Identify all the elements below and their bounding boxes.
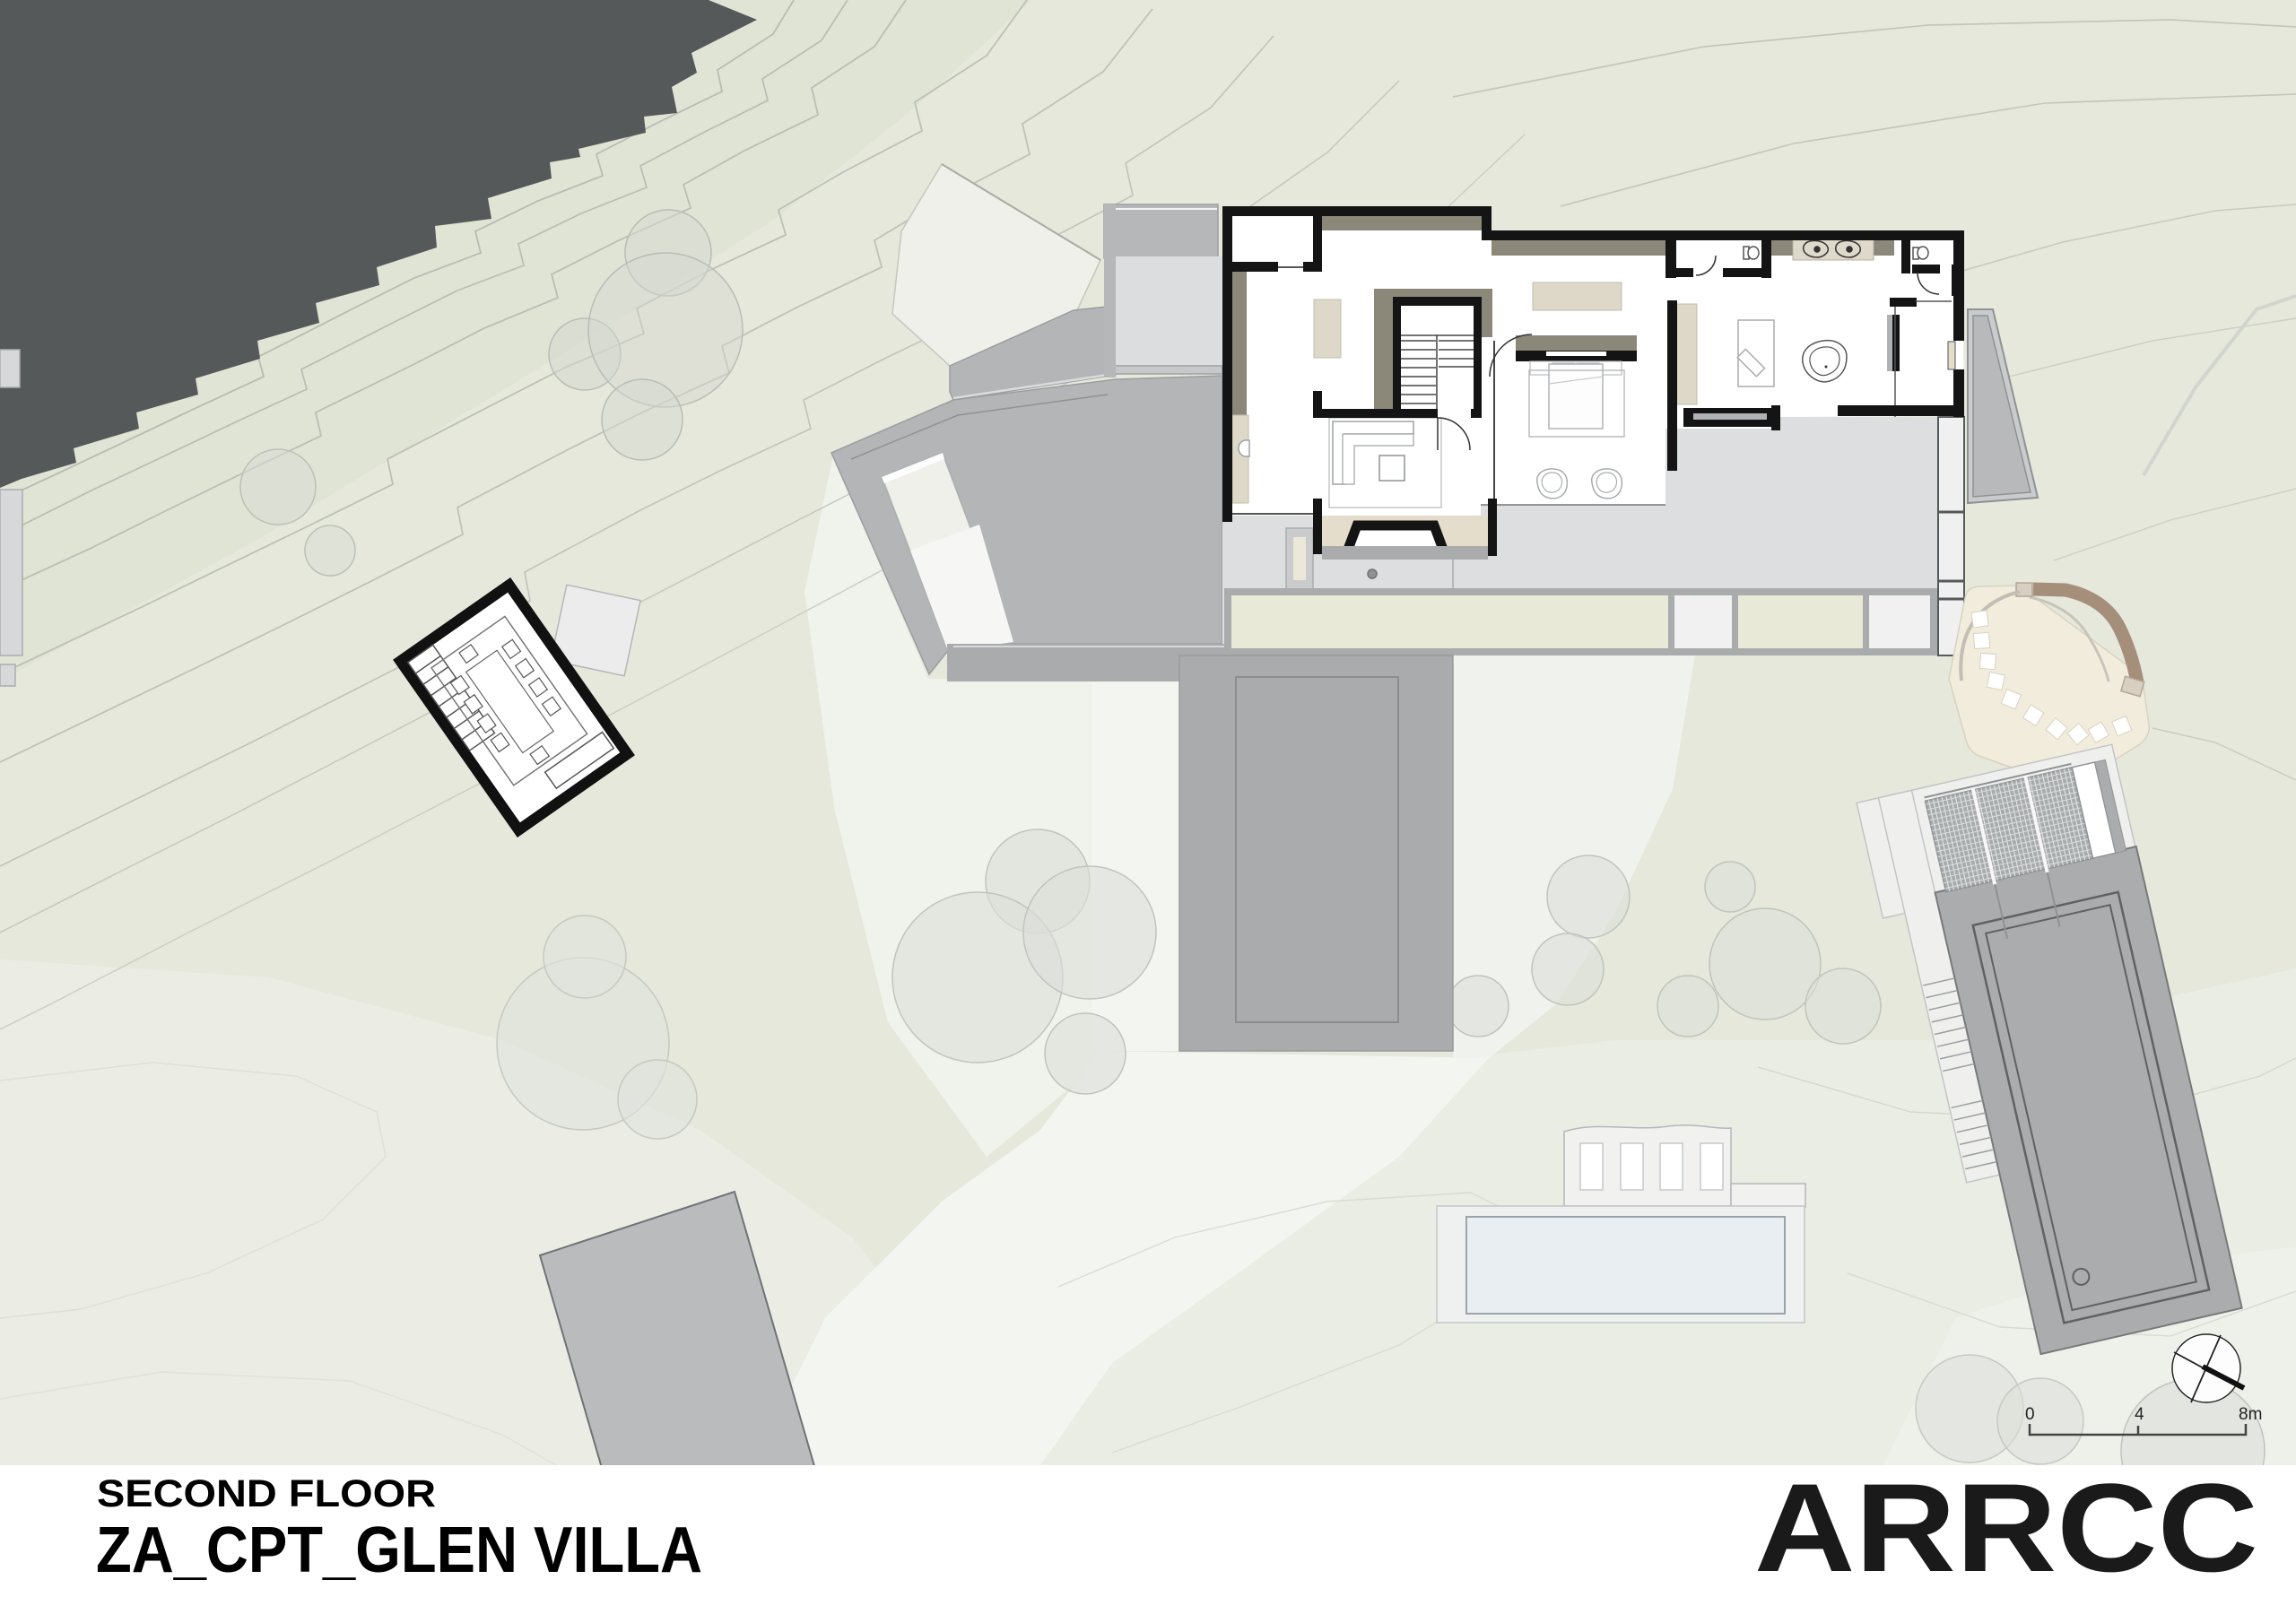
svg-text:8m: 8m bbox=[2239, 1405, 2262, 1424]
svg-text:ZA_CPT_GLEN VILLA: ZA_CPT_GLEN VILLA bbox=[96, 1515, 702, 1586]
svg-text:0: 0 bbox=[2025, 1405, 2035, 1424]
svg-text:SECOND FLOOR: SECOND FLOOR bbox=[97, 1472, 436, 1515]
svg-text:4: 4 bbox=[2135, 1405, 2144, 1424]
svg-text:ARRCC: ARRCC bbox=[1754, 1457, 2258, 1598]
